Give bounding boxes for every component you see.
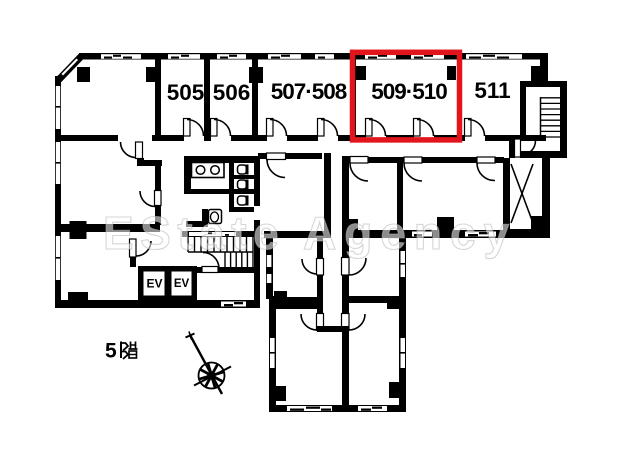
svg-text:5: 5: [105, 340, 117, 363]
svg-text:EV: EV: [174, 278, 190, 290]
svg-text:EV: EV: [146, 277, 162, 291]
svg-text:506: 506: [213, 80, 251, 105]
svg-text:EState: EState: [103, 207, 285, 259]
svg-text:511: 511: [474, 78, 510, 103]
svg-text:507·508: 507·508: [271, 79, 347, 104]
svg-text:509·510: 509·510: [371, 79, 447, 104]
svg-text:505: 505: [167, 80, 205, 105]
svg-text:Agency: Agency: [303, 207, 517, 259]
